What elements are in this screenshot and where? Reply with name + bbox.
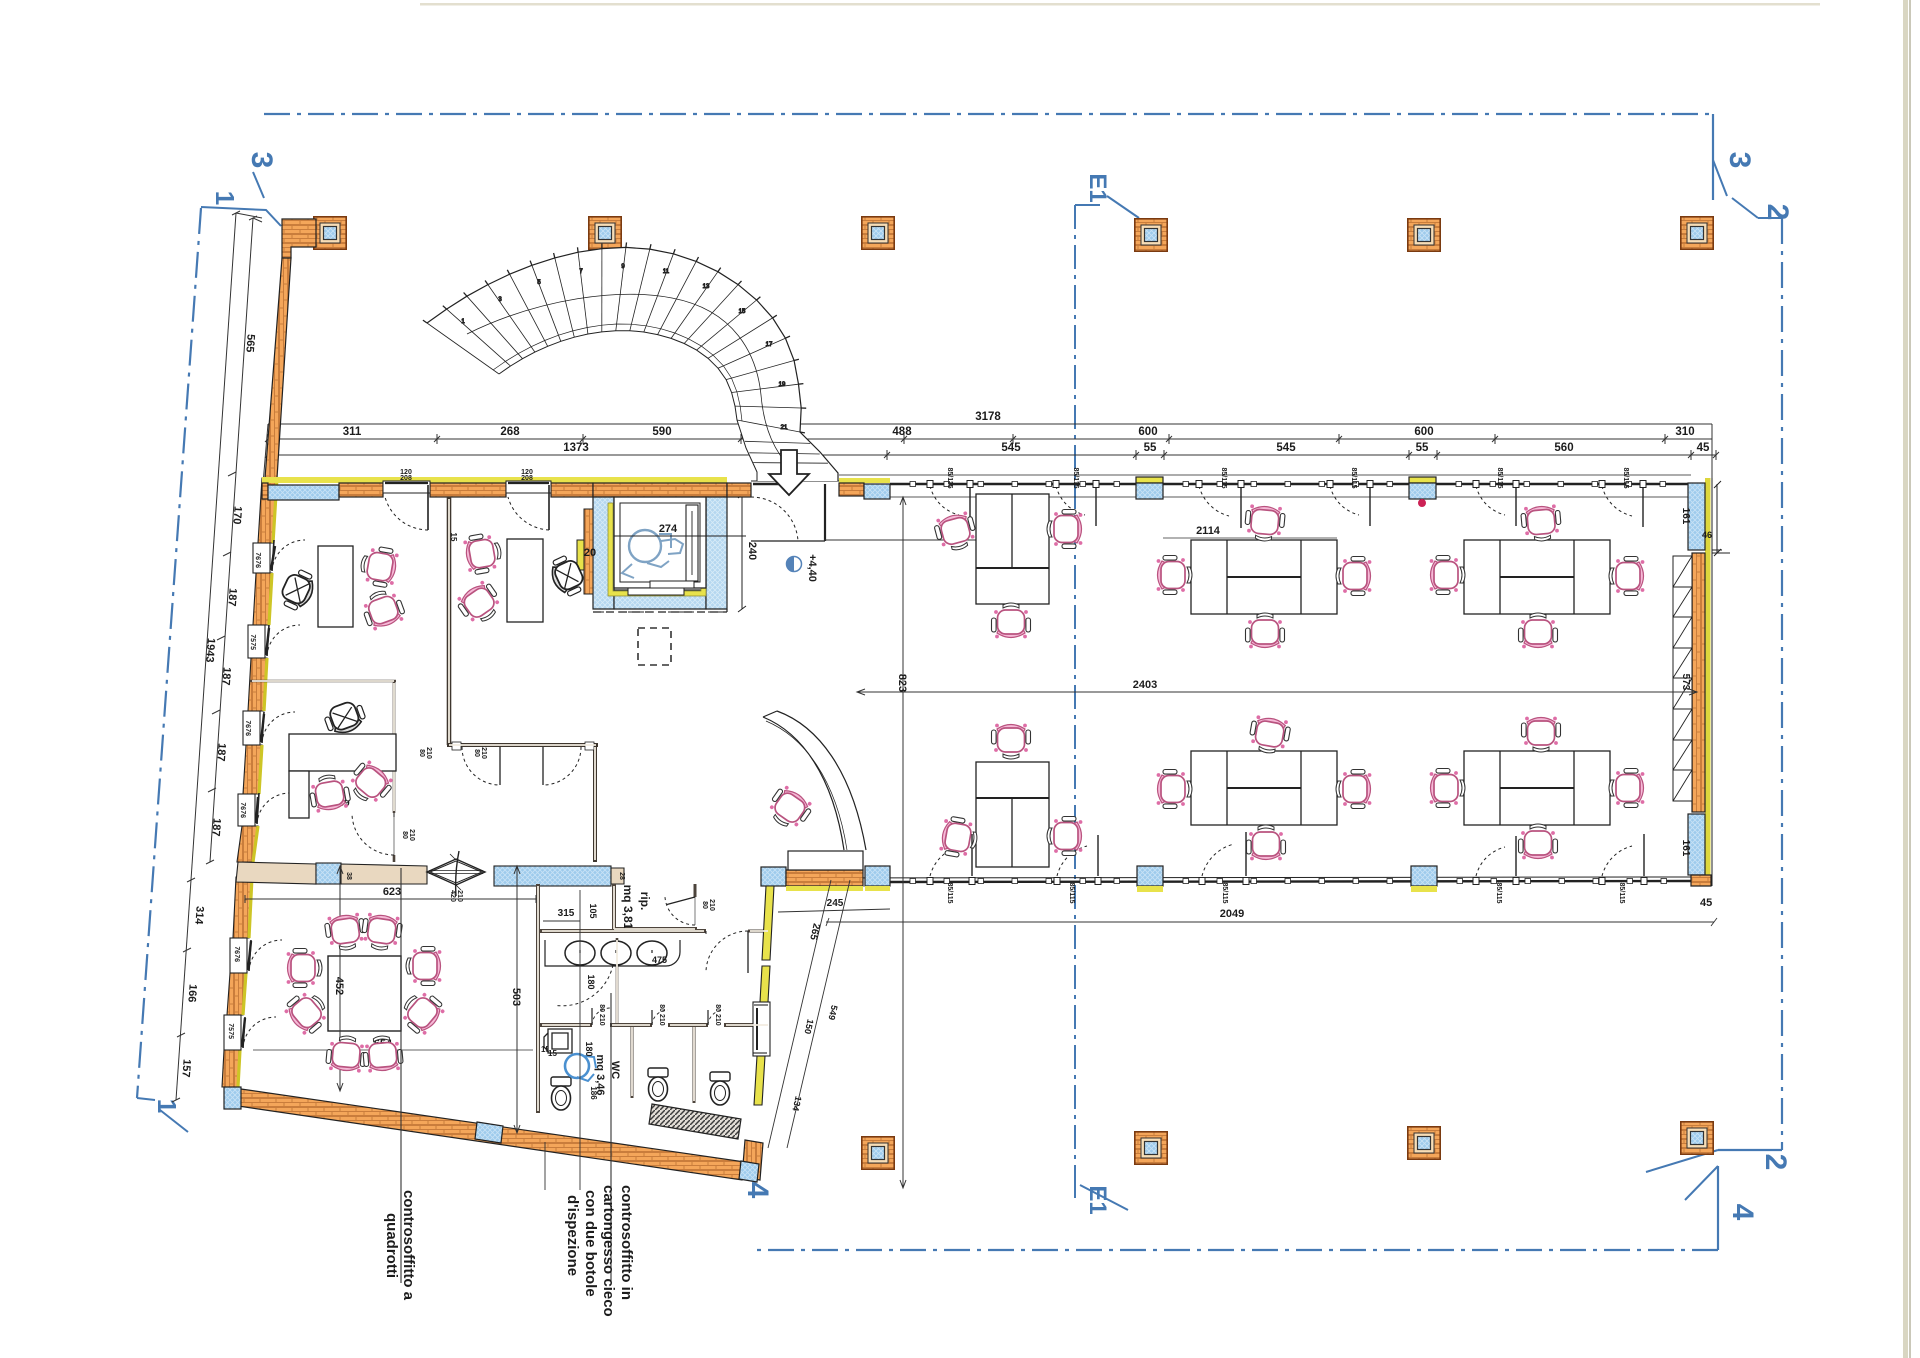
svg-text:210: 210 [456,890,463,902]
svg-text:573: 573 [1680,674,1691,691]
svg-text:cartongesso cieco: cartongesso cieco [600,1185,617,1317]
svg-text:600: 600 [1414,426,1433,438]
svg-text:d'ispezione: d'ispezione [564,1195,581,1276]
svg-text:85/115: 85/115 [1622,467,1629,488]
svg-text:3: 3 [1723,152,1756,169]
svg-text:rip.: rip. [638,892,652,911]
svg-text:75: 75 [227,1031,235,1039]
svg-text:con due botole: con due botole [582,1190,599,1297]
svg-text:76: 76 [254,560,262,568]
svg-text:80: 80 [418,749,425,757]
svg-text:85/115: 85/115 [1068,882,1075,903]
svg-text:187: 187 [219,667,232,686]
svg-text:315: 315 [558,908,575,919]
svg-text:503: 503 [510,988,522,1006]
svg-text:80: 80 [473,749,480,757]
svg-text:80: 80 [401,831,408,839]
svg-text:452: 452 [333,977,345,995]
svg-text:38: 38 [345,872,352,880]
svg-text:76: 76 [239,810,247,818]
svg-text:80: 80 [701,901,708,909]
svg-text:28: 28 [618,872,625,880]
svg-text:mq 3,81: mq 3,81 [621,885,635,930]
svg-text:2114: 2114 [1196,525,1221,537]
svg-text:1: 1 [152,1099,182,1113]
svg-text:3178: 3178 [975,411,1001,423]
svg-text:420: 420 [449,890,456,902]
svg-text:80 210: 80 210 [598,1004,605,1026]
svg-text:2: 2 [1759,1154,1792,1171]
svg-text:quadrotti: quadrotti [383,1213,400,1278]
svg-text:2: 2 [1761,204,1794,221]
svg-text:E1: E1 [1084,173,1111,202]
svg-text:823: 823 [896,674,908,692]
svg-text:1943: 1943 [203,638,217,663]
svg-text:623: 623 [383,886,401,898]
svg-text:2403: 2403 [1133,679,1157,691]
svg-text:controsoffitto in: controsoffitto in [618,1185,635,1300]
svg-text:4: 4 [741,1182,774,1199]
svg-text:controsoffitto a: controsoffitto a [400,1190,417,1301]
svg-text:85/115: 85/115 [1350,467,1357,488]
svg-text:85/115: 85/115 [1496,467,1503,488]
svg-text:240: 240 [746,542,758,560]
svg-text:76: 76 [233,954,241,962]
svg-text:3: 3 [245,152,278,169]
svg-text:311: 311 [343,426,362,438]
svg-text:161: 161 [1680,840,1691,857]
svg-text:210: 210 [480,747,487,759]
svg-text:15: 15 [449,533,458,542]
svg-text:187: 187 [214,743,227,762]
svg-text:85/115: 85/115 [946,467,953,488]
svg-text:55: 55 [1144,442,1157,454]
svg-text:314: 314 [192,906,205,926]
svg-text:166: 166 [185,984,198,1003]
svg-text:475: 475 [652,955,667,965]
svg-text:17: 17 [766,342,773,348]
svg-text:565: 565 [243,334,256,353]
svg-text:45: 45 [1700,897,1712,909]
svg-text:85/115: 85/115 [946,882,953,903]
svg-text:187: 187 [225,588,238,607]
svg-text:274: 274 [659,523,678,535]
svg-text:157: 157 [179,1059,192,1078]
svg-text:208: 208 [521,475,533,482]
svg-text:600: 600 [1138,426,1157,438]
svg-text:21: 21 [781,425,788,431]
svg-text:1: 1 [210,191,240,205]
svg-text:E1: E1 [1084,1185,1111,1214]
svg-text:76: 76 [244,728,252,736]
svg-text:187: 187 [209,818,222,837]
svg-text:+4,40: +4,40 [806,554,818,582]
svg-text:210: 210 [425,747,432,759]
svg-text:80 210: 80 210 [658,1004,665,1026]
svg-text:545: 545 [1001,442,1021,454]
svg-text:488: 488 [892,426,912,438]
svg-text:1373: 1373 [563,442,589,454]
svg-text:186: 186 [589,1086,598,1100]
svg-text:180: 180 [584,1041,594,1056]
svg-text:105: 105 [588,903,598,918]
svg-text:85/115: 85/115 [1220,467,1227,488]
svg-text:268: 268 [500,426,520,438]
svg-text:208: 208 [400,475,412,482]
svg-text:85/115: 85/115 [1221,882,1228,903]
svg-text:245: 245 [827,898,844,909]
svg-text:75: 75 [249,642,257,650]
svg-text:161: 161 [1680,508,1691,525]
svg-text:85/115: 85/115 [1072,467,1079,488]
svg-text:180: 180 [586,974,596,989]
svg-text:46: 46 [1702,530,1712,540]
svg-text:55: 55 [1416,442,1429,454]
svg-text:310: 310 [1675,426,1694,438]
svg-text:13: 13 [703,284,710,290]
svg-text:80 210: 80 210 [714,1004,721,1026]
svg-text:545: 545 [1276,442,1296,454]
svg-text:560: 560 [1554,442,1573,454]
svg-text:210: 210 [408,829,415,841]
svg-text:15: 15 [548,1049,557,1058]
svg-text:85/115: 85/115 [1618,882,1625,903]
svg-text:85/115: 85/115 [1495,882,1502,903]
svg-text:45: 45 [1697,442,1710,454]
svg-text:11: 11 [663,269,670,275]
svg-text:4: 4 [1726,1204,1759,1221]
svg-text:19: 19 [779,382,786,388]
svg-text:170: 170 [230,506,243,525]
svg-text:15: 15 [739,309,746,315]
svg-text:210: 210 [708,899,715,911]
svg-text:2049: 2049 [1220,908,1244,920]
svg-text:590: 590 [652,426,671,438]
